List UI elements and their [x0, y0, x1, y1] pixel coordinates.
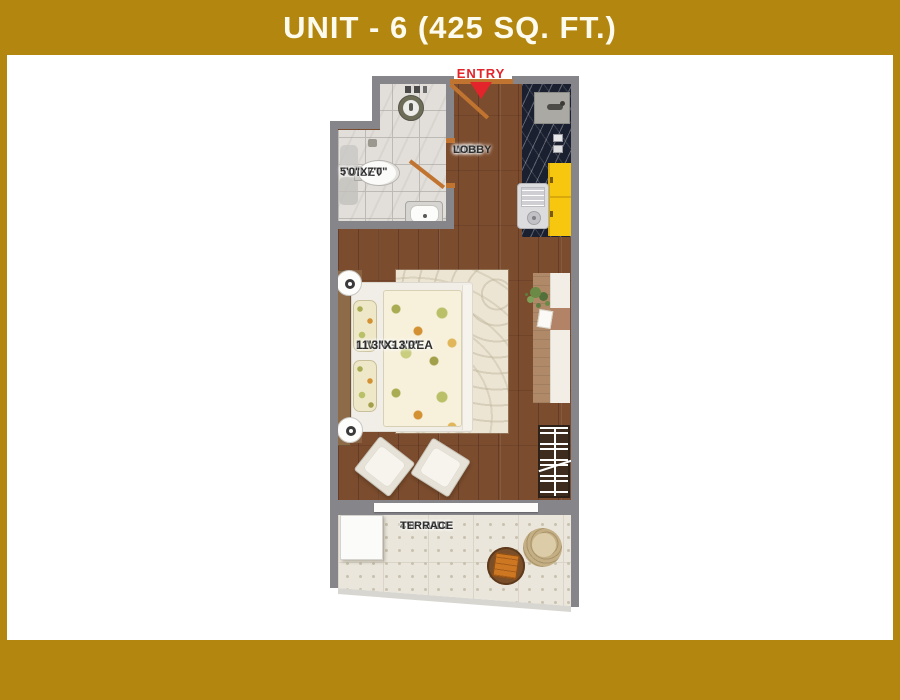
cabinet-knob	[550, 177, 553, 183]
washing-machine	[517, 183, 549, 229]
kitchen-switch	[553, 134, 563, 142]
lamp-dot	[348, 282, 352, 286]
washer-knob-dot	[532, 216, 536, 220]
console-decor	[537, 309, 554, 329]
wall	[512, 76, 579, 84]
living-label-size: 11'3"X13'0"	[356, 339, 420, 352]
bed-sheet-fold	[462, 285, 472, 430]
wall	[330, 121, 338, 588]
wall	[372, 76, 380, 126]
bedside-table-lamp	[346, 426, 356, 436]
terrace-round-table	[487, 547, 525, 585]
kitchen-switch	[553, 145, 563, 153]
toilet-door-jamb	[446, 138, 455, 143]
floorplan-page: UNIT - 6 (425 SQ. FT.)	[0, 0, 900, 700]
pillow	[353, 360, 377, 412]
wall	[372, 76, 450, 84]
bath-fixtures	[405, 86, 427, 93]
drying-rack	[538, 425, 570, 498]
wall	[446, 188, 454, 229]
drying-rack-bar	[554, 427, 556, 496]
wall	[571, 76, 579, 607]
terrace-table	[340, 515, 383, 560]
shower-drain	[398, 95, 424, 121]
page-title: UNIT - 6 (425 SQ. FT.)	[0, 0, 900, 55]
bedside-table	[337, 417, 363, 443]
entry-label: ENTRY	[451, 66, 511, 81]
armchair-cushion	[362, 444, 407, 489]
frame-right-band	[893, 0, 900, 700]
terrace-label-line2: TERRACE	[400, 520, 453, 533]
sliding-door	[374, 503, 538, 512]
bedside-table	[336, 270, 362, 296]
potted-plant	[530, 287, 541, 298]
plan-notch	[330, 75, 372, 122]
lamp-dot	[349, 429, 353, 433]
terrace-round-table-top	[492, 552, 519, 579]
wall	[330, 221, 454, 229]
toilet-door-jamb	[446, 183, 455, 188]
washer-knob	[527, 211, 541, 225]
bedside-table-lamp	[345, 279, 355, 289]
towel	[339, 177, 358, 205]
frame-left-band	[0, 0, 7, 700]
kitchen-sink	[534, 92, 570, 124]
lobby-label-line3: LOBBY	[453, 144, 492, 157]
washer-top-rack	[521, 187, 545, 207]
cabinet-knob	[550, 211, 553, 217]
bed-duvet	[383, 290, 462, 427]
floorplan: 4'0" WIDE TERRACE ENTRY 4'0" WIDE LOBBY	[330, 75, 580, 612]
rattan-chair-cushion	[532, 533, 556, 557]
frame-bottom-band	[0, 640, 900, 700]
shower-drain-dot	[409, 103, 413, 111]
kitchen-faucet-knob	[560, 101, 565, 106]
tv-console	[550, 273, 570, 403]
entry-arrow-icon	[470, 82, 492, 99]
yellow-cabinet	[548, 163, 572, 236]
rattan-chair	[523, 528, 562, 567]
toilet-sink-drain	[423, 214, 427, 218]
armchair-cushion	[418, 446, 462, 490]
toilet-tap	[368, 139, 377, 147]
toilet-label-size: 5'0"X7'0"	[340, 166, 387, 179]
